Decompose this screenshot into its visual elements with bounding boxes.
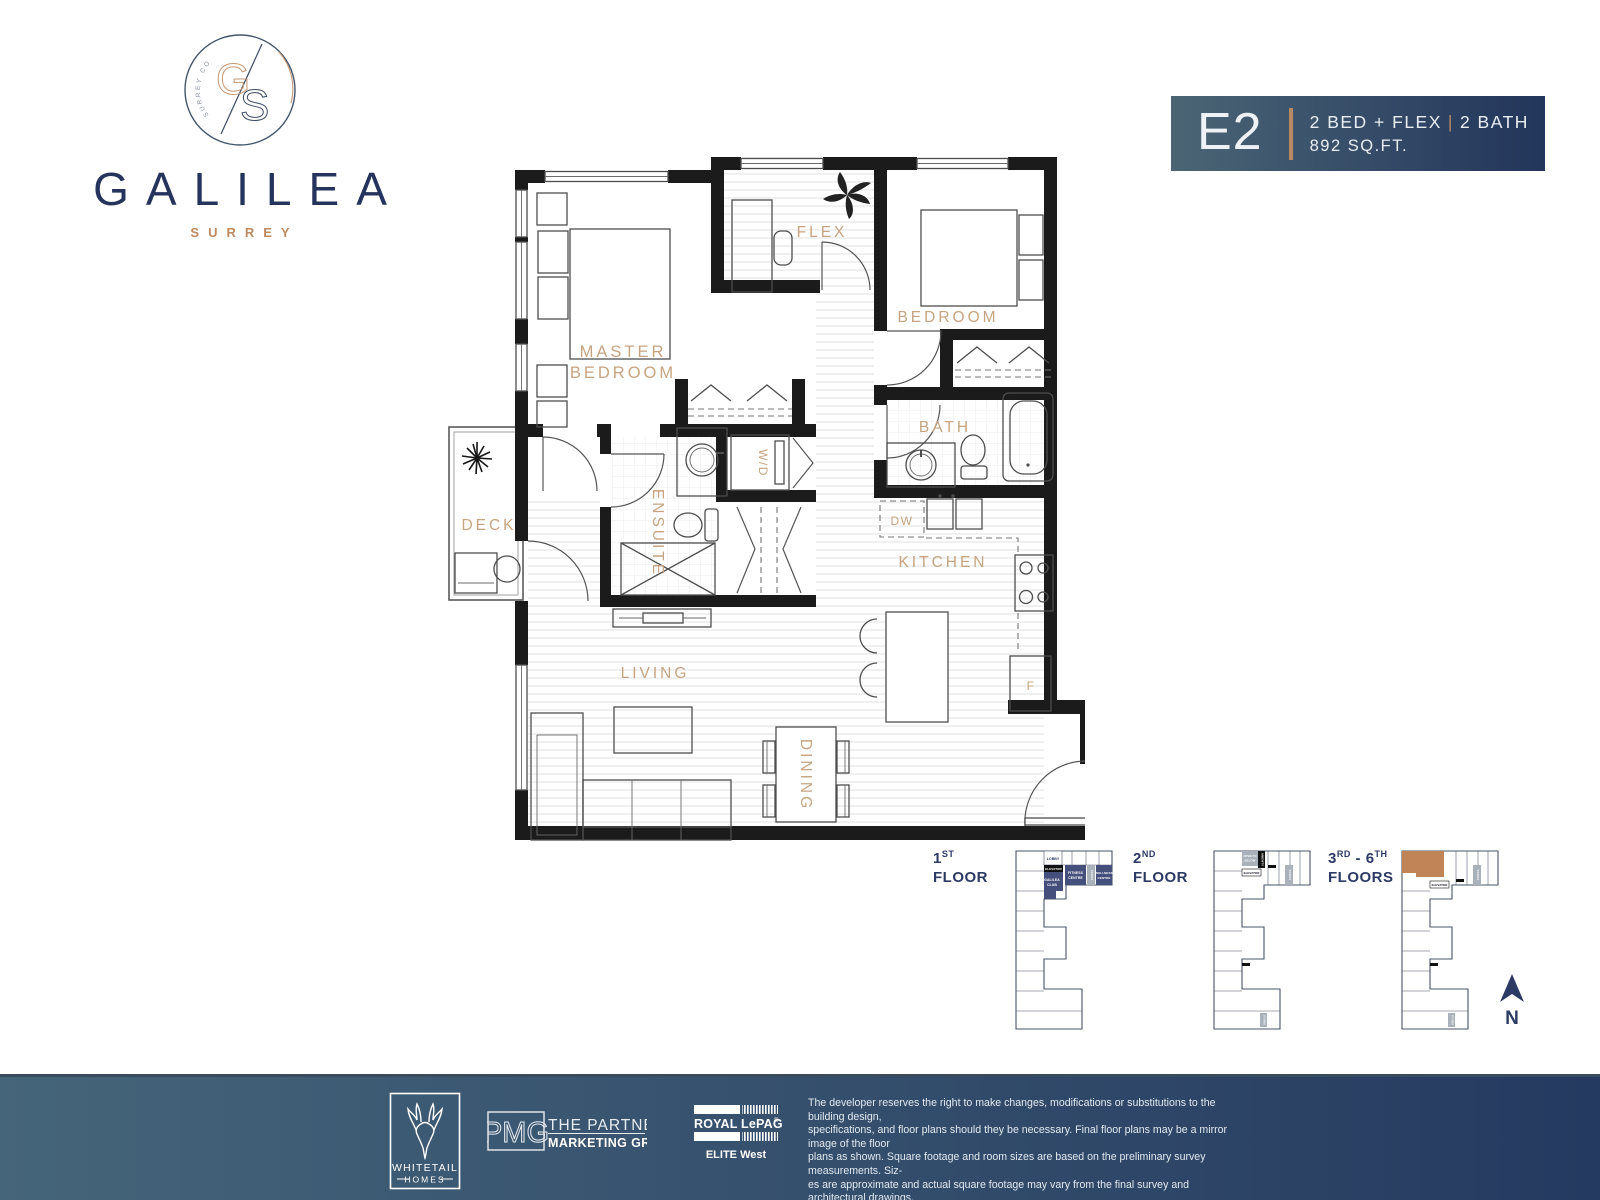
- unit-code: E2: [1171, 102, 1289, 166]
- monogram-s: S: [240, 81, 269, 130]
- disclaimer-line-1: The developer reserves the right to make…: [808, 1097, 1228, 1124]
- label-master-2: BEDROOM: [570, 364, 676, 382]
- unit-banner: E2 2 BED + FLEX|2 BATH 892 SQ.FT.: [1171, 96, 1545, 171]
- brand-name: GALILEA: [55, 162, 425, 216]
- kp1-lobby: LOBBY: [1047, 857, 1060, 861]
- kitchen-island: [886, 612, 948, 722]
- deck-area: [449, 427, 523, 600]
- unit-area: 892 SQ.FT.: [1310, 137, 1529, 156]
- kp1-elevator: ELEVATOR: [1045, 867, 1062, 871]
- svg-text:BELOW: BELOW: [1245, 859, 1256, 863]
- disclaimer-line-3: plans as shown. Square footage and room …: [808, 1151, 1228, 1178]
- unit-separator: |: [1442, 112, 1460, 132]
- label-flex: FLEX: [797, 224, 848, 241]
- kp2-open-1: OPEN TO: [1243, 854, 1257, 858]
- north-arrow-icon: [1500, 974, 1524, 1002]
- master-door: [543, 437, 597, 491]
- floorplan-sheet: G S SURREY CONDOS GALILEA SURREY E2 2 BE…: [0, 0, 1600, 1200]
- floorplan-drawing: MASTER BEDROOM FLEX BEDROOM BATH ENSUITE…: [425, 135, 1085, 845]
- brand-monogram-logo: G S SURREY CONDOS: [178, 28, 302, 152]
- brand-city: SURREY: [55, 225, 425, 240]
- disclaimer-line-4: es are approximate and actual square foo…: [808, 1179, 1228, 1200]
- window-master-top: [545, 172, 668, 182]
- north-letter: N: [1505, 1008, 1519, 1029]
- pmg-logo: PMG THE PARTNERS MARKETING GROUP: [487, 1106, 647, 1158]
- window-flex-top: [741, 159, 823, 169]
- label-dining: DINING: [797, 739, 814, 811]
- pmg-line1: THE PARTNERS: [548, 1117, 647, 1134]
- royal-name: ROYAL LePAGE: [694, 1117, 782, 1131]
- pmg-abbr: PMG: [487, 1117, 549, 1149]
- label-fridge: F: [1027, 679, 1036, 693]
- kp1-fitness-1: FITNESS: [1068, 871, 1084, 875]
- kp1-stairs: STAIRS: [1090, 870, 1094, 881]
- kp1-wellness-1: WELLNESS: [1095, 871, 1112, 875]
- kp2-amenity: AMENITY: [1261, 853, 1265, 866]
- window-living-left: [516, 665, 527, 790]
- label-deck: DECK: [461, 517, 516, 534]
- svg-text:CLUB: CLUB: [1047, 883, 1057, 887]
- footer-bar: WHITETAIL HOMES PMG THE PARTNERS MARKETI…: [0, 1074, 1600, 1200]
- label-bath: BATH: [919, 419, 971, 436]
- keyplan-1-label: 1ST FLOOR: [933, 845, 988, 887]
- unit-info: 2 BED + FLEX|2 BATH 892 SQ.FT.: [1293, 112, 1529, 156]
- window-master-left: [516, 190, 527, 391]
- unit-beds: 2 BED + FLEX: [1310, 112, 1442, 132]
- keyplan-floor1: LOBBY ELEVATOR FITNESS CENTRE STAIRS WEL…: [1000, 843, 1118, 1033]
- keyplan-2-label: 2ND FLOOR: [1133, 845, 1188, 887]
- kp2-elevator: ELEVATOR: [1244, 871, 1261, 875]
- keyplan-floor2: OPEN TO BELOW AMENITY ELEVATOR STAIRS ST…: [1198, 843, 1316, 1033]
- royal-lepage-logo: ROYAL LePAGE ® ELITE West: [690, 1101, 782, 1165]
- kp3-elevator: ELEVATOR: [1432, 883, 1449, 887]
- whitetail-sub: HOMES: [404, 1175, 445, 1185]
- label-bedroom: BEDROOM: [897, 309, 998, 326]
- kp2-stairs-1: STAIRS: [1288, 870, 1292, 881]
- royal-sub: ELITE West: [706, 1149, 767, 1161]
- brand-block: G S SURREY CONDOS GALILEA SURREY: [55, 28, 425, 240]
- whitetail-homes-logo: WHITETAIL HOMES: [389, 1092, 461, 1190]
- whitetail-name: WHITETAIL: [392, 1162, 458, 1174]
- svg-text:CENTRE: CENTRE: [1068, 876, 1083, 880]
- logo-circle-text: SURREY CONDOS: [178, 28, 213, 118]
- label-master-1: MASTER: [580, 343, 667, 361]
- label-living: LIVING: [621, 665, 690, 682]
- label-ensuite: ENSUITE: [649, 489, 666, 577]
- royal-reg: ®: [774, 1117, 779, 1124]
- pmg-line2: MARKETING GROUP: [548, 1136, 647, 1150]
- disclaimer-text: The developer reserves the right to make…: [808, 1097, 1228, 1200]
- deer-icon: [408, 1104, 442, 1158]
- label-wd: W/D: [756, 449, 770, 477]
- kp1-club-1: GALILEA: [1044, 878, 1060, 882]
- label-kitchen: KITCHEN: [898, 554, 987, 571]
- svg-text:CENTRE: CENTRE: [1098, 876, 1111, 880]
- north-arrow: N: [1498, 972, 1528, 1030]
- disclaimer-line-2: specifications, and floor plans should t…: [808, 1124, 1228, 1151]
- keyplan-3-label: 3RD - 6TH FLOORS: [1328, 845, 1394, 887]
- kp2-stairs-2: STAIRS: [1263, 1015, 1267, 1025]
- window-bedroom-top: [917, 159, 1008, 169]
- kp3-stairs-2: STAIRS: [1451, 1015, 1455, 1025]
- keyplan-floors3-6: ELEVATOR STAIRS STAIRS: [1386, 843, 1504, 1033]
- label-dw: DW: [891, 514, 914, 528]
- kp3-stairs-1: STAIRS: [1476, 870, 1480, 881]
- unit-baths: 2 BATH: [1460, 112, 1529, 132]
